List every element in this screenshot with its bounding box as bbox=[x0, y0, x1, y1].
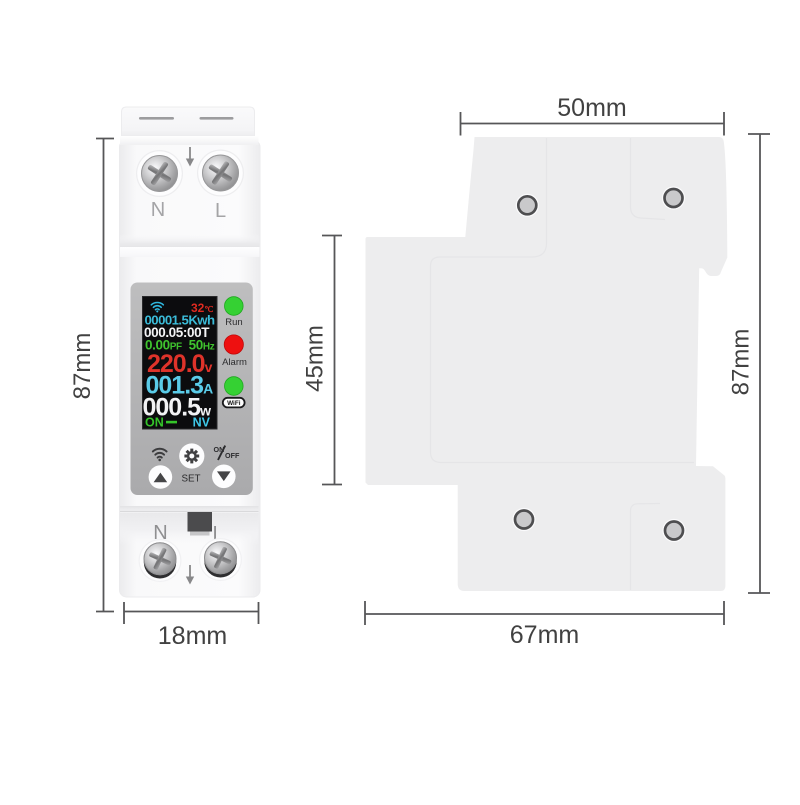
svg-text:OFF: OFF bbox=[225, 451, 240, 460]
svg-text:87mm: 87mm bbox=[728, 329, 755, 396]
svg-text:67mm: 67mm bbox=[510, 621, 579, 649]
svg-text:45mm: 45mm bbox=[302, 325, 329, 392]
svg-text:WiFi: WiFi bbox=[227, 400, 241, 407]
svg-text:N: N bbox=[151, 199, 165, 221]
svg-text:L: L bbox=[215, 200, 226, 222]
svg-text:87mm: 87mm bbox=[69, 333, 96, 400]
svg-text:50mm: 50mm bbox=[557, 94, 626, 122]
svg-text:Alarm: Alarm bbox=[222, 357, 247, 368]
svg-text:18mm: 18mm bbox=[158, 622, 227, 650]
svg-text:ON: ON bbox=[145, 416, 164, 430]
svg-text:NV: NV bbox=[193, 416, 211, 430]
svg-text:Run: Run bbox=[225, 317, 242, 328]
svg-text:SET: SET bbox=[181, 474, 200, 485]
